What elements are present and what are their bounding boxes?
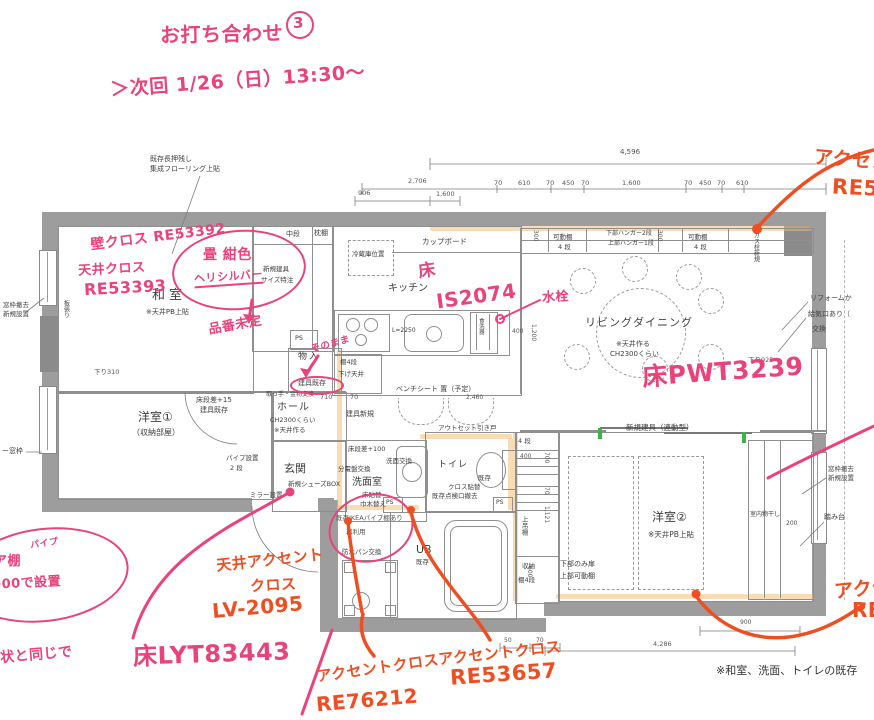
label-cover-waku: ー窓枠: [2, 447, 23, 456]
label-reform: リフォームか: [810, 294, 852, 303]
dim-b900: 900: [740, 619, 751, 626]
label-dansa15: 床段差+15: [196, 396, 232, 405]
dim: 1,600: [436, 190, 455, 198]
bench-seat: [448, 398, 494, 425]
hw-accent-tr-1: アクセント: [813, 142, 874, 177]
label-c4dan: 4 段: [518, 437, 531, 445]
dim: 2,706: [408, 177, 427, 185]
bench-seat: [398, 398, 444, 425]
floor-plan-canvas: 和室 ※天井PB上貼 中段 枕棚 新規建具 サイズ特注 PS 物入 建具既存 取…: [0, 0, 874, 720]
hw-pipe-3: 900で設置: [0, 570, 62, 593]
hw-accent-br-2: RE: [852, 598, 874, 622]
hw-ceiling-accent-3: LV-2095: [211, 591, 304, 623]
hw-faucet: 水栓: [542, 285, 570, 305]
hw-accent1-label: アクセントクロス: [315, 649, 440, 687]
label-shita-tobira: 下部のみ扉: [560, 560, 595, 569]
label-pipe-setchi: パイプ設置: [226, 454, 259, 462]
toilet-note-1: 既存: [478, 474, 491, 482]
ub-note: 既存: [416, 558, 429, 566]
dim: 600: [526, 566, 533, 577]
label-madowaku-left-2: 新規設置: [3, 310, 29, 318]
label-l2250: L=2250: [392, 327, 416, 335]
label-chudan: 中段: [286, 230, 300, 239]
closet-east: [748, 440, 814, 600]
label-tategu-kison: 建具既存: [200, 406, 228, 415]
dining-chair: [622, 256, 648, 282]
tategu-kison-circle: [290, 376, 344, 395]
room-label-yoshitsu1: 洋室①: [138, 410, 173, 425]
burner: [364, 318, 378, 332]
label-sagetenjo: 下げ天井: [338, 370, 364, 378]
hw-ceiling-cloth-1: 天井クロス: [78, 256, 146, 279]
label-rendou: 新規建具（連動型）: [626, 423, 694, 432]
label-gasusen: ガス栓新規: [752, 232, 760, 262]
label-dansa100: 床段差+100: [348, 445, 385, 453]
label-makuradana: 枕棚: [314, 229, 328, 238]
label-shoes-box: 新規シューズBOX: [288, 480, 340, 488]
dim: 70: [581, 179, 589, 187]
dim-sagari310: 下り310: [94, 366, 119, 376]
dining-chair: [564, 344, 590, 370]
door-marker: [598, 428, 602, 439]
room-label-toilet: トイレ: [438, 460, 468, 471]
ld-note-1: ※天井作る: [616, 340, 650, 349]
label-tategu-shinki: 建具新規: [346, 410, 374, 419]
hw-tatami-1: 畳 紺色: [203, 244, 252, 264]
washer-drain: [352, 592, 370, 610]
label-madowaku-right-1: 窓枠撤去: [828, 465, 854, 473]
label-nageshi-2: 集成フローリング上貼: [150, 165, 220, 174]
dim-300-b: 300: [656, 230, 663, 241]
dim: 906: [358, 189, 370, 197]
wall-left-pillar: [40, 316, 58, 372]
dim-2460: 2,460: [466, 394, 483, 401]
dishwasher: [470, 312, 498, 354]
dim-200: 200: [786, 520, 797, 527]
dim: 450: [699, 179, 711, 187]
wall-bottom-center: [334, 618, 546, 632]
label-senmen-koukan: 洗面交換: [386, 457, 412, 465]
dim: 700: [543, 452, 550, 463]
label-hanger-lower: 下部ハンガー2段: [606, 230, 652, 238]
hw-meeting-title: お打ち合わせ: [160, 17, 283, 48]
label-shokusenki: 食洗器: [477, 318, 484, 335]
wardrobe-planned: [568, 456, 634, 590]
hw-entrance-floor: 床LYT83443: [132, 631, 290, 671]
hw-pipe-2: ア棚: [0, 550, 21, 569]
balcony-door-right: [811, 348, 827, 434]
room-label-hall: ホール: [277, 402, 310, 415]
label-fumidai: 踏み台: [824, 513, 845, 522]
room-genkan: [272, 440, 347, 512]
room-yoshitsu1: [58, 392, 274, 500]
label-kado-right: 可動棚: [688, 233, 708, 241]
label-koukan: 交換: [812, 325, 826, 334]
dim: 610: [518, 179, 530, 187]
hw-accent1-code: RE76212: [315, 684, 419, 717]
dim-b4286: 4,286: [653, 640, 672, 648]
label-kado-left-dan: 4 段: [558, 243, 571, 251]
label-uwazuri: 上吊棚: [520, 516, 528, 536]
dining-chair: [698, 288, 724, 314]
label-ps-1: PS: [295, 334, 303, 342]
hw-next-meeting: ＞次回 1/26（日）13:30〜: [109, 57, 365, 102]
dim: 1,600: [622, 179, 641, 187]
bathtub-inner: [450, 526, 502, 606]
label-madowaku-left-1: 窓枠撤去: [3, 301, 29, 309]
yoshitsu1-note: （収納部屋）: [132, 428, 180, 438]
label-tana4dan: 棚4段: [340, 358, 357, 366]
hw-accent-tr-2: RE53: [831, 174, 874, 201]
wall-bottom-right: [544, 602, 826, 616]
dim-c400: 400: [520, 453, 531, 460]
label-ps-3: PS: [496, 499, 503, 507]
dim: 70: [494, 179, 502, 187]
label-nageshi-1: 既存長押残し: [150, 155, 192, 164]
label-bunden: 分電盤交換: [338, 465, 371, 473]
label-monohoshi: 室内物干し: [750, 511, 780, 519]
dim-k400: 400: [512, 328, 523, 335]
dim: 610: [736, 179, 748, 187]
dining-chair: [570, 268, 596, 294]
dim: 70: [684, 179, 692, 187]
label-kyuki: 給気口あり（: [808, 310, 850, 319]
dim-k1200: 1,200: [530, 324, 537, 341]
hw-kitchen-floor-prefix: 床: [416, 255, 437, 282]
dim: 70: [546, 179, 554, 187]
label-itabari: 板張り: [62, 300, 70, 318]
sink-drain: [426, 326, 442, 342]
room-label-ub: UB: [416, 543, 432, 557]
burner: [355, 334, 367, 346]
burner: [346, 318, 360, 332]
room-label-kitchen: キッチン: [388, 283, 428, 296]
hw-ceiling-accent-1: 天井アクセント: [215, 543, 324, 575]
label-cupboard: カップボード: [422, 237, 467, 246]
door-marker: [742, 432, 746, 443]
label-mirror: ミラー設置: [250, 491, 283, 499]
washitsu-note: ※天井PB上貼: [146, 308, 189, 317]
hw-same-as: 状と同じで: [0, 641, 73, 667]
window-left-2: [39, 386, 57, 454]
room-label-yoshitsu2: 洋室②: [652, 510, 687, 525]
label-outset: アウトセット引き戸: [438, 424, 497, 432]
label-hanger-upper: 上部ハンガー1段: [608, 240, 654, 248]
footnote: ※和室、洗面、トイレの既存: [716, 664, 857, 678]
room-label-genkan: 玄関: [284, 462, 306, 476]
wall-top: [42, 212, 826, 226]
dim-70h: 70: [350, 393, 358, 401]
toilet-note-3: 既存点検口撤去: [432, 492, 478, 500]
room-label-ld: リビングダイニング: [585, 316, 693, 330]
room-label-senmen: 洗面室: [352, 477, 382, 490]
yoshitsu2-note: ※天井PB上貼: [648, 530, 694, 539]
label-kado-left: 可動棚: [553, 233, 573, 241]
label-reizouko: 冷蔵庫位置: [352, 250, 385, 258]
dim: 450: [562, 179, 574, 187]
hw-meeting-number: 3: [293, 14, 304, 32]
toilet-tank: [502, 450, 517, 490]
dining-chair: [676, 264, 702, 290]
label-kado-right-dan: 4 段: [694, 243, 707, 251]
window-left-1: [39, 250, 57, 306]
label-pipe-2dan: 2 段: [230, 464, 243, 472]
label-madowaku-right-2: 新規設置: [828, 474, 854, 482]
toilet-note-2: クロス貼替: [448, 483, 481, 491]
hall-note-1: CH2300くらい: [270, 416, 315, 424]
dim: 70: [717, 179, 725, 187]
dim-total: 4,596: [620, 148, 640, 156]
dim: 70: [543, 487, 550, 495]
label-joubu-kado: 上部可動棚: [560, 572, 595, 581]
dim: 1,121: [543, 506, 550, 523]
hall-note-2: ※天井作る: [274, 426, 305, 434]
dim-300-a: 300: [532, 230, 539, 241]
label-bench: ベンチシート 置（予定）: [396, 385, 475, 394]
